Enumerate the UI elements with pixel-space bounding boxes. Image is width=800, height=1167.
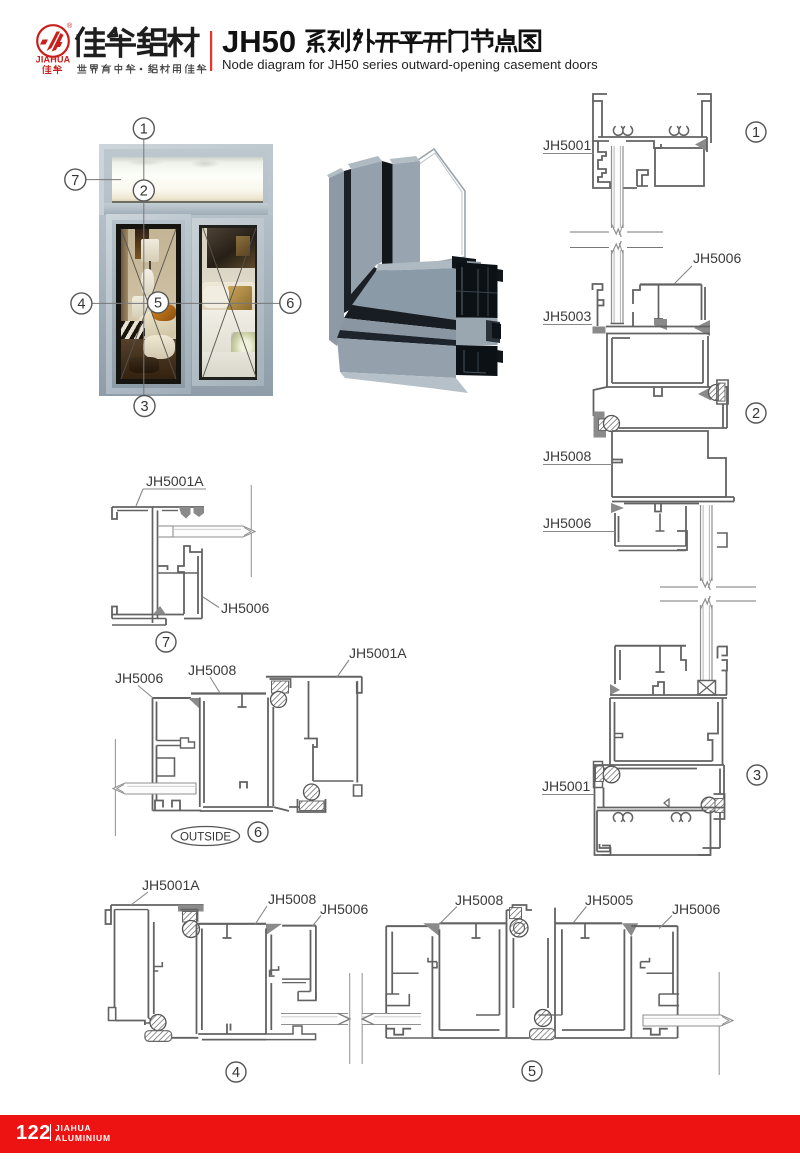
svg-text:5: 5 bbox=[528, 1064, 536, 1080]
svg-text:1: 1 bbox=[752, 125, 760, 141]
svg-text:6: 6 bbox=[286, 296, 294, 312]
svg-text:5: 5 bbox=[154, 296, 162, 312]
svg-text:JIAHUA: JIAHUA bbox=[36, 55, 71, 65]
svg-text:4: 4 bbox=[232, 1065, 240, 1081]
svg-text:JH5006: JH5006 bbox=[543, 515, 591, 531]
svg-text:1: 1 bbox=[140, 122, 148, 138]
svg-text:JH5001A: JH5001A bbox=[142, 877, 200, 893]
svg-text:2: 2 bbox=[140, 184, 148, 200]
svg-text:6: 6 bbox=[254, 825, 262, 841]
svg-text:JH5006: JH5006 bbox=[221, 600, 269, 616]
svg-text:3: 3 bbox=[140, 399, 148, 415]
svg-text:JH5008: JH5008 bbox=[268, 891, 316, 907]
svg-text:JH5003: JH5003 bbox=[543, 308, 591, 324]
svg-text:Node diagram for JH50 series o: Node diagram for JH50 series outward-ope… bbox=[222, 57, 598, 72]
svg-text:®: ® bbox=[67, 22, 73, 30]
svg-text:JH5005: JH5005 bbox=[585, 892, 633, 908]
svg-text:JH5001: JH5001 bbox=[543, 137, 591, 153]
svg-text:JH5006: JH5006 bbox=[320, 901, 368, 917]
svg-text:JH5008: JH5008 bbox=[188, 662, 236, 678]
svg-text:JH5006: JH5006 bbox=[115, 670, 163, 686]
svg-text:4: 4 bbox=[77, 297, 85, 313]
svg-text:7: 7 bbox=[71, 173, 79, 189]
svg-text:2: 2 bbox=[752, 406, 760, 422]
svg-text:7: 7 bbox=[162, 635, 170, 651]
svg-text:JH5006: JH5006 bbox=[672, 901, 720, 917]
svg-text:JH5001A: JH5001A bbox=[349, 645, 407, 661]
svg-text:JH5001A: JH5001A bbox=[146, 473, 204, 489]
svg-text:JH5001: JH5001 bbox=[542, 778, 590, 794]
svg-text:3: 3 bbox=[753, 768, 761, 784]
svg-text:OUTSIDE: OUTSIDE bbox=[180, 832, 231, 844]
svg-text:JH5006: JH5006 bbox=[693, 250, 741, 266]
svg-text:JH5008: JH5008 bbox=[455, 892, 503, 908]
svg-text:JH50: JH50 bbox=[222, 24, 296, 59]
svg-text:JH5008: JH5008 bbox=[543, 448, 591, 464]
